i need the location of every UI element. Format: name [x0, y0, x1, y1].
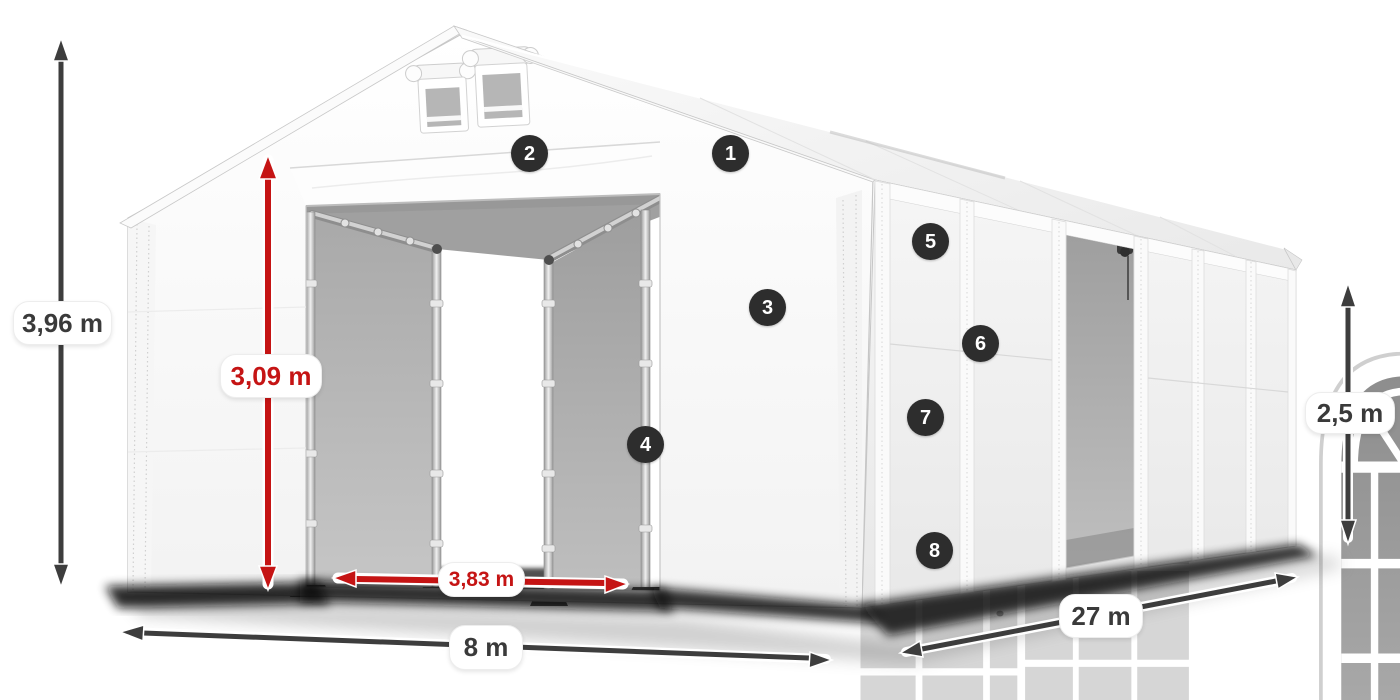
tent-illustration [0, 0, 1400, 700]
feature-badge-4[interactable]: 4 [627, 426, 664, 463]
open-door-left [312, 216, 440, 590]
feature-badge-1[interactable]: 1 [712, 135, 749, 172]
side-door-open [1066, 227, 1134, 568]
feature-badge-2[interactable]: 2 [511, 135, 548, 172]
total-height-label: 3,96 m [13, 301, 112, 345]
entrance-width-label: 3,83 m [438, 562, 525, 597]
feature-badge-8[interactable]: 8 [916, 532, 953, 569]
tent-dimension-diagram: 3,96 m 3,09 m 3,83 m 8 m 27 m 2,5 m 1 2 … [0, 0, 1400, 700]
open-door-right [553, 213, 642, 596]
feature-badge-3[interactable]: 3 [749, 289, 786, 326]
front-width-label: 8 m [449, 625, 523, 670]
feature-badge-5[interactable]: 5 [912, 223, 949, 260]
entrance-height-label: 3,09 m [220, 354, 322, 398]
side-length-label: 27 m [1059, 594, 1143, 638]
feature-badge-6[interactable]: 6 [962, 325, 999, 362]
feature-badge-7[interactable]: 7 [907, 399, 944, 436]
side-wall-height-label: 2,5 m [1305, 392, 1395, 434]
